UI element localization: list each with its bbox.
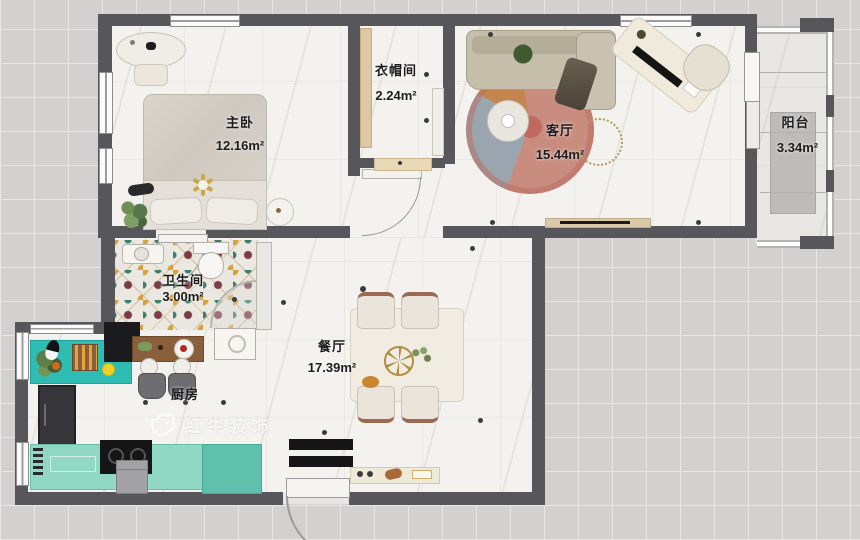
spotlight-dot [490,220,495,225]
sink-lines [50,456,96,472]
bar-bottle [158,345,163,350]
desk-item [635,28,648,41]
wall-dining-right [532,232,545,505]
coffee-table-inner [501,114,515,128]
shoe-cabinet-bar [289,439,353,450]
balcony-sliding-door [746,101,760,149]
entry-door-leaf [286,478,350,498]
console-item [367,471,373,477]
dressing-table [116,32,186,68]
bull-logo-icon [148,410,178,438]
wall-living-left [443,14,455,164]
spotlight-dot [696,32,701,37]
spotlight-dot [143,400,148,405]
bar-dish-green [138,342,152,351]
console-item [357,471,363,477]
dressing-table-item [130,40,135,45]
balcony-rack-line [760,192,828,193]
room-area-dining-room: 17.39m² [287,360,377,375]
dining-chair [357,386,395,423]
room-area-balcony: 3.34m² [760,140,835,155]
fruit-decor [52,362,60,370]
bedside-table-item [276,208,281,213]
window-kitchen-left-2 [16,442,29,486]
dining-chair [357,292,395,329]
shoe-cabinet-bar [289,456,353,467]
brand-watermark-text: 红牛装饰 [185,412,273,437]
spotlight-dot [478,418,483,423]
dressing-stool [134,64,168,86]
room-label-kitchen: 厨房 [155,384,215,403]
sofa-plant-icon [512,42,534,66]
console-card-item [412,470,432,479]
bar-plate-center [180,345,187,352]
kitchen-counter-mint-right [202,444,262,494]
balcony-rack-line [760,132,828,133]
window-bedroom-top [170,15,240,27]
lemon-decor [102,363,115,376]
dining-chair [401,292,439,329]
room-label-balcony: 阳台 [763,112,828,131]
room-label-master-bedroom: 主卧 [205,112,275,131]
brand-watermark: 红牛装饰 [148,410,273,438]
fridge-handle [44,404,46,426]
bottle-shelf [72,344,98,371]
dish-rack [33,448,43,478]
spotlight-dot [322,430,327,435]
dining-chair [401,386,439,423]
window-kitchen-left [16,332,29,380]
dressing-table-item [146,42,156,50]
spotlight-dot [281,300,286,305]
room-label-living-room: 客厅 [525,120,595,139]
balcony-corner-block [800,18,834,32]
balcony-wall-stub [826,170,834,192]
table-sprig-icon [408,344,434,366]
room-label-bathroom: 卫生间 [147,270,219,289]
bathroom-cabinet [256,242,272,330]
balcony-sliding-door [744,52,760,102]
flower-decor-icon [188,170,218,200]
closet-door-step [374,158,432,171]
bathroom-sink-bowl [134,247,149,261]
balcony-corner-block [800,236,834,249]
balcony-rack-line [760,72,828,73]
wall-bathroom-left [101,232,115,332]
window-bedroom-left [99,72,113,134]
room-area-bathroom: 3.00m² [148,289,218,304]
room-area-master-bedroom: 12.16m² [195,138,285,153]
spotlight-dot [488,32,493,37]
bed-pillow [149,197,202,226]
spotlight-dot [424,118,429,123]
spotlight-dot [221,400,226,405]
spotlight-dot [470,246,475,251]
spotlight-dot [696,220,701,225]
plant-icon [116,196,150,230]
room-label-dining-room: 餐厅 [297,336,367,355]
entry-door-arc [286,496,350,540]
floor-plan-canvas: 主卧 12.16m² 衣帽间 2.24m² 客厅 15.44m² 阳台 3.34… [0,0,860,540]
tv-bar [560,221,630,224]
window-kitchen-top [30,324,94,334]
balcony-frame-right [826,26,834,248]
food-dish [362,376,379,388]
room-area-cloakroom: 2.24m² [356,88,436,103]
room-label-cloakroom: 衣帽间 [360,60,432,79]
room-area-living-room: 15.44m² [515,147,605,162]
spotlight-dot [232,297,237,302]
spotlight-dot [360,286,366,292]
closet-step-handle [398,161,402,165]
washing-machine-door [228,335,246,353]
wall-bottom-right [349,492,545,505]
oven-front [116,460,148,494]
window-bedroom-left-2 [99,148,113,184]
wall-closet-bottom-stub [348,158,374,168]
bed-pillow [205,197,258,226]
